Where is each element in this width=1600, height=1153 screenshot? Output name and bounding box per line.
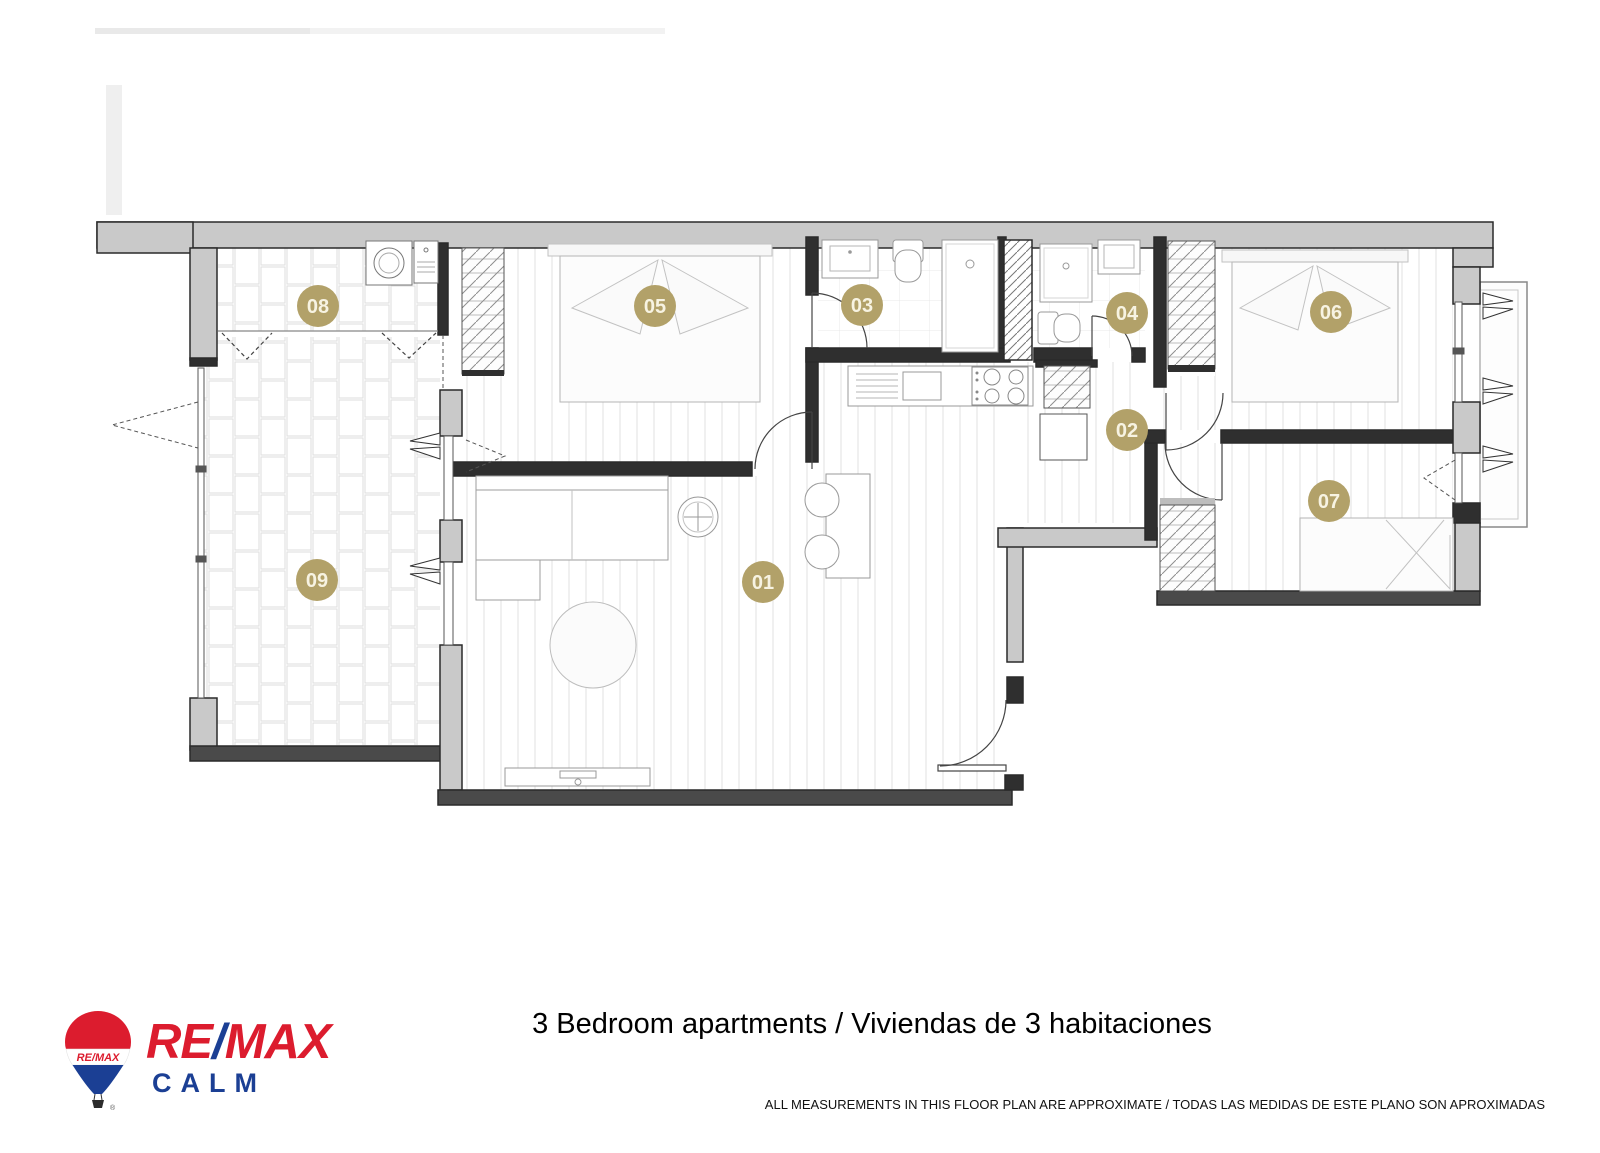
wordmark-re: RE: [146, 1015, 212, 1069]
balloon-basket: [92, 1100, 104, 1108]
wordmark-max: MAX: [225, 1015, 331, 1069]
remax-balloon-icon: RE/MAX ®: [58, 1006, 138, 1118]
svg-text:05: 05: [644, 296, 666, 318]
room-label-03: 03: [841, 284, 883, 326]
room-label-04: 04: [1106, 292, 1148, 334]
room-label-06: 06: [1310, 291, 1352, 333]
shower-icon: [942, 240, 998, 352]
wordmark-slash: /: [212, 1015, 225, 1069]
room-label-01: 01: [742, 561, 784, 603]
svg-text:02: 02: [1116, 420, 1138, 442]
remax-logo: RE/MAX ® RE/MAX CALM: [58, 1002, 388, 1122]
floor-plan: 010203040506070809: [0, 0, 1600, 1153]
laundry-sink-icon: [414, 241, 438, 283]
tv-bench-icon: [505, 768, 650, 786]
rug-icon: [550, 602, 636, 688]
sink-icon: [1098, 240, 1140, 274]
room-label-09: 09: [296, 559, 338, 601]
registered-mark: ®: [110, 1104, 116, 1112]
washing-machine-icon: [366, 241, 412, 285]
round-table-icon: [678, 497, 718, 537]
balloon-band-label: RE/MAX: [77, 1052, 120, 1064]
floor-plan-page: 010203040506070809 RE/MAX ® RE/MAX CALM …: [0, 0, 1600, 1153]
wardrobe-icon: [462, 248, 504, 376]
toilet-icon: [1038, 312, 1080, 344]
stove-icon: [972, 367, 1028, 405]
remax-tagline: CALM: [152, 1070, 266, 1097]
faint-artifacts: [95, 28, 665, 215]
svg-text:03: 03: [851, 295, 873, 317]
balcony: [1480, 282, 1527, 527]
svg-text:08: 08: [307, 296, 329, 318]
toilet-icon: [893, 240, 923, 282]
svg-text:04: 04: [1116, 303, 1139, 325]
single-bed-icon: [1300, 518, 1453, 591]
remax-wordmark: RE/MAX: [146, 1018, 331, 1067]
svg-text:09: 09: [306, 570, 328, 592]
double-bed-icon: [1222, 250, 1408, 402]
sink-icon: [822, 240, 878, 278]
svg-text:07: 07: [1318, 491, 1340, 513]
room-label-02: 02: [1106, 409, 1148, 451]
wardrobe-icon: [1168, 241, 1215, 372]
svg-text:06: 06: [1320, 302, 1342, 324]
shower-icon: [1040, 244, 1092, 302]
measurements-disclaimer: ALL MEASUREMENTS IN THIS FLOOR PLAN ARE …: [765, 1097, 1545, 1112]
room-label-07: 07: [1308, 480, 1350, 522]
svg-text:01: 01: [752, 572, 774, 594]
page-title: 3 Bedroom apartments / Viviendas de 3 ha…: [532, 1008, 1212, 1041]
room-label-05: 05: [634, 285, 676, 327]
wardrobe-icon: [1160, 498, 1215, 591]
room-label-08: 08: [297, 285, 339, 327]
